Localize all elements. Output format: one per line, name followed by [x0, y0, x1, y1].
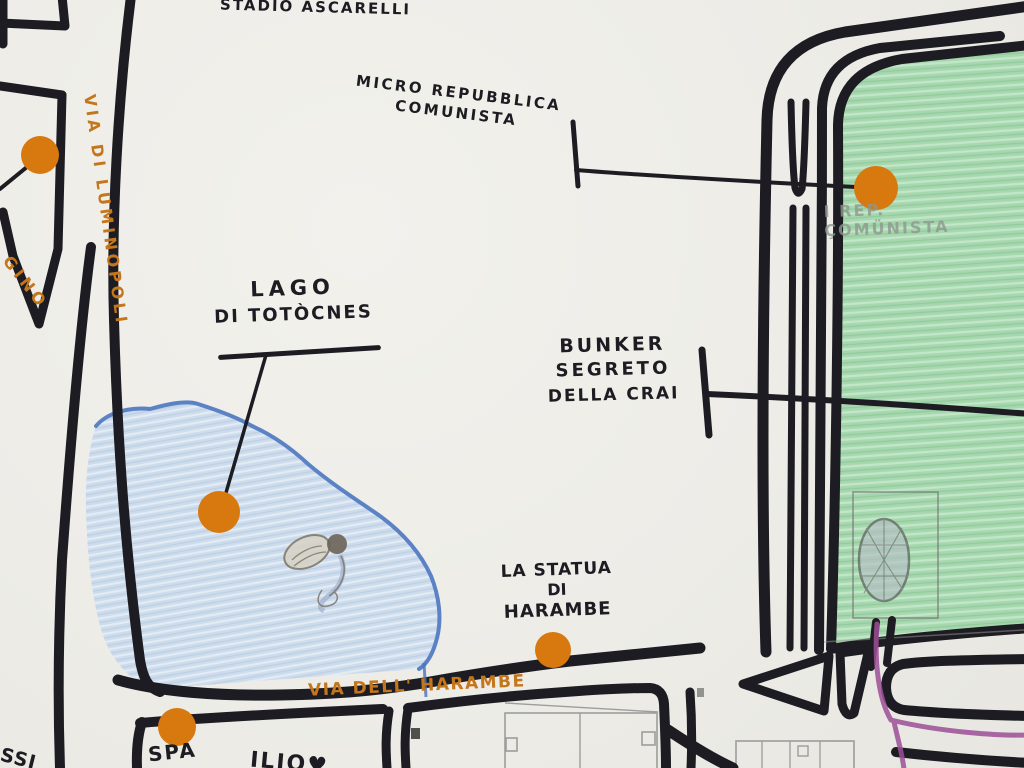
street-label-via-di-luminopoli: VIA DI LUMINOPOLI: [80, 93, 132, 327]
label-spa: SPA: [147, 738, 198, 767]
street-label-fragment-gino: GINO: [0, 252, 52, 313]
label-fragment-ssi: SSI: [0, 744, 39, 768]
hand-drawn-map-photo: STADIO ASCARELLI MICRO REPUBBLICA COMUNI…: [0, 0, 1024, 768]
label-underline: [218, 345, 381, 360]
label-stadio-ascarelli: STADIO ASCARELLI: [220, 0, 411, 18]
label-line: ÇOMÜNISTA: [824, 217, 950, 241]
label-micro-repubblica-comunista: MICRO REPUBBLICA COMUNISTA: [348, 71, 566, 135]
label-line: LAGO: [201, 273, 384, 305]
labels-layer: STADIO ASCARELLI MICRO REPUBBLICA COMUNI…: [0, 0, 1024, 768]
label-fragment-ilio: ILIO♥: [249, 748, 330, 768]
label-pencil-rep-comunista: I REP. ÇOMÜNISTA: [823, 198, 949, 241]
street-label-via-dell-harambe: VIA DELL' HARAMBE: [308, 671, 526, 701]
label-line: SEGRETO: [528, 357, 699, 383]
label-la-statua-di-harambe: LA STATUA DI HARAMBE: [486, 558, 628, 624]
label-lago-di-totocnes: LAGO DI TOTÒCNES: [201, 273, 385, 329]
label-line: BUNKER: [527, 332, 698, 359]
label-line: HARAMBE: [487, 597, 628, 623]
label-line: DELLA CRAI: [528, 383, 698, 408]
label-bunker-segreto-della-crai: BUNKER SEGRETO DELLA CRAI: [527, 332, 699, 408]
label-line: DI TOTÒCNES: [202, 301, 385, 329]
